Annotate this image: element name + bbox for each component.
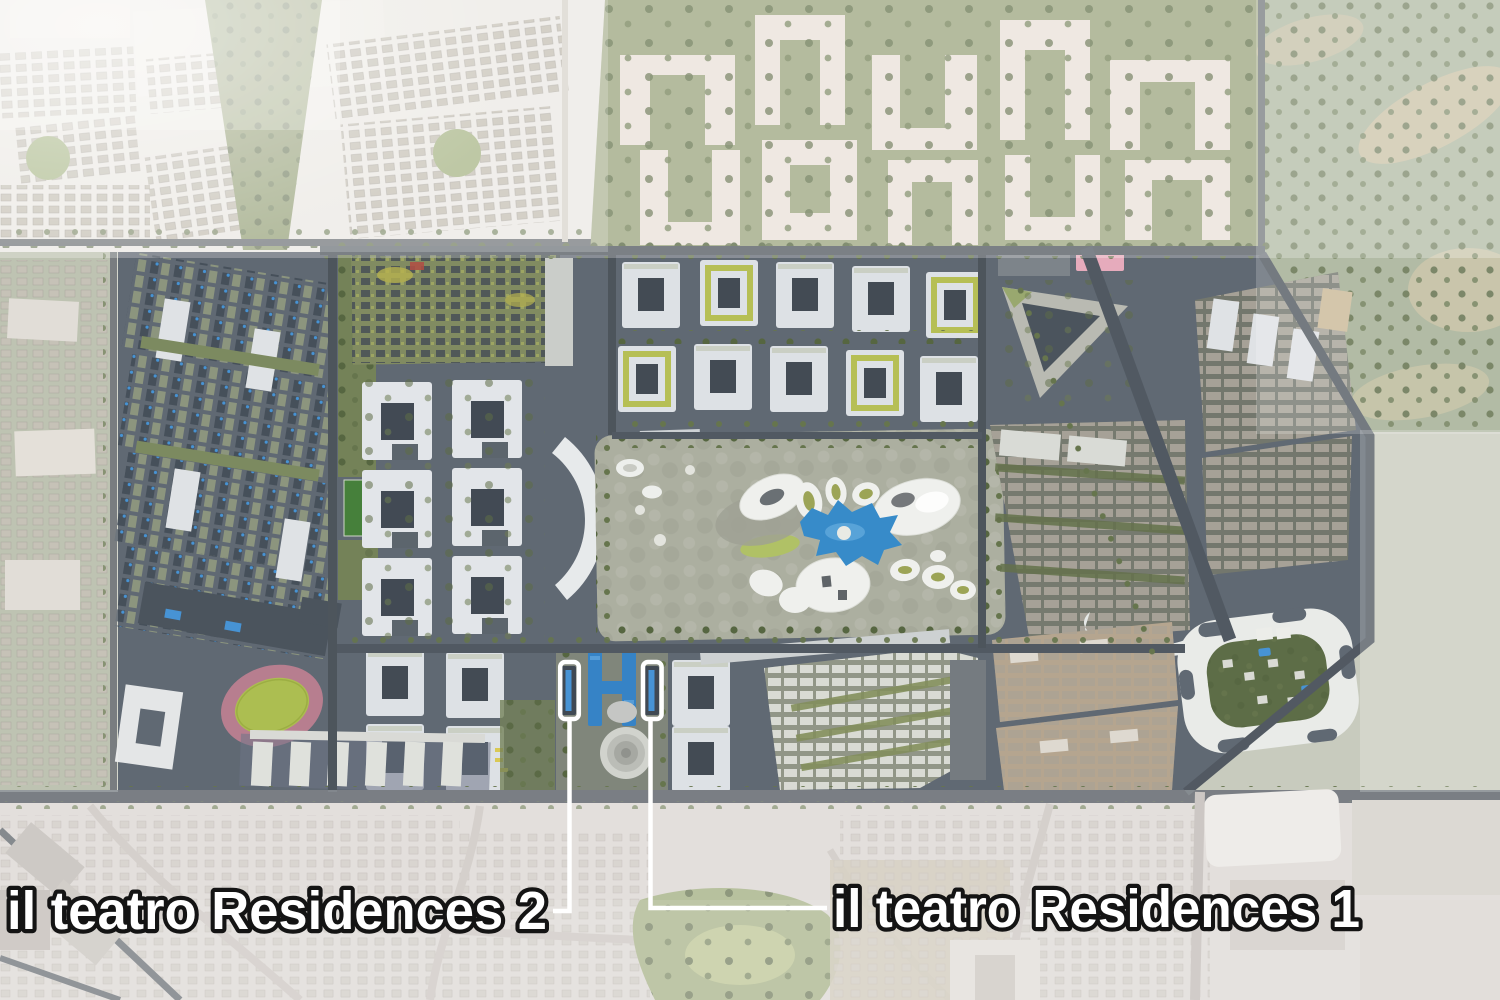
residences-2-highlight-box xyxy=(560,662,579,719)
residences-2-label: il teatro Residences 2 xyxy=(7,881,547,941)
masterplan-aerial-screenshot: il teatro Residences 2 il teatro Residen… xyxy=(0,0,1500,1000)
residences-2-leader-line xyxy=(553,719,570,911)
residences-1-leader-line xyxy=(651,719,828,908)
annotation-overlay: il teatro Residences 2 il teatro Residen… xyxy=(0,0,1500,1000)
residences-1-highlight-box xyxy=(643,662,662,719)
residences-1-label: il teatro Residences 1 xyxy=(833,879,1360,939)
